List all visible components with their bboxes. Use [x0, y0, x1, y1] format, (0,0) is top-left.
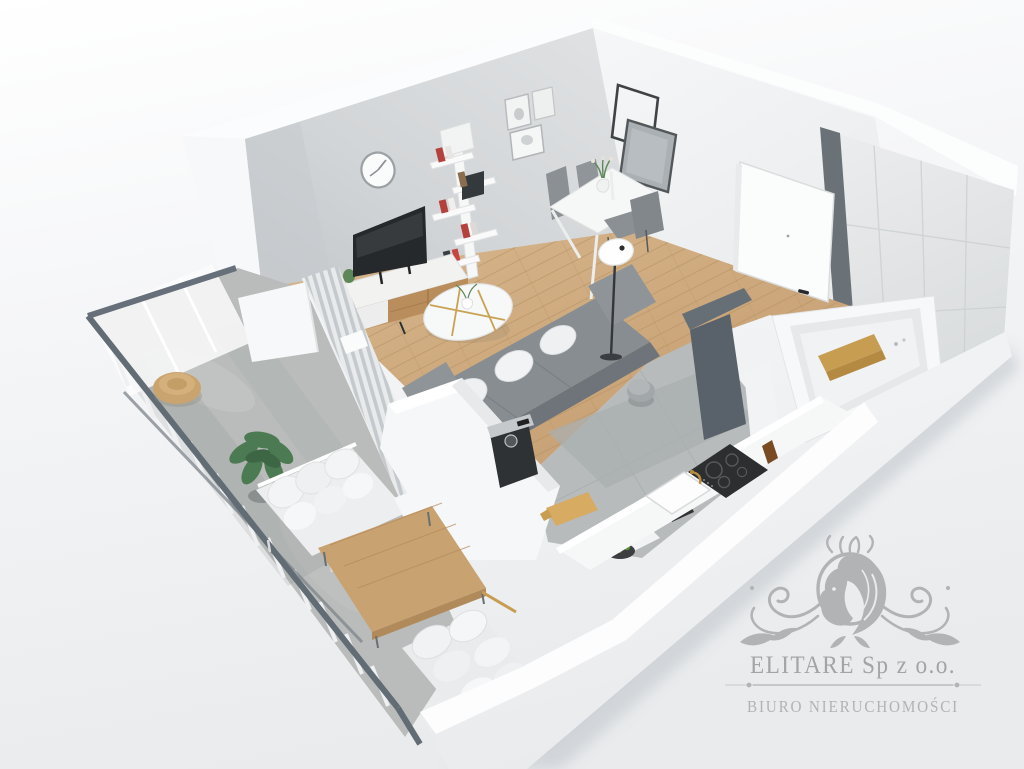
fluffy-stool	[627, 379, 655, 407]
company-tagline: BIURO NIERUCHOMOŚCI	[747, 697, 959, 716]
floorplan-render-page: ELITARE Sp z o.o. BIURO NIERUCHOMOŚCI	[0, 0, 1024, 769]
apartment-3d-floorplan: ELITARE Sp z o.o. BIURO NIERUCHOMOŚCI	[0, 0, 1024, 769]
company-name: ELITARE Sp z o.o.	[750, 652, 956, 679]
wicker-pouf	[153, 372, 202, 407]
